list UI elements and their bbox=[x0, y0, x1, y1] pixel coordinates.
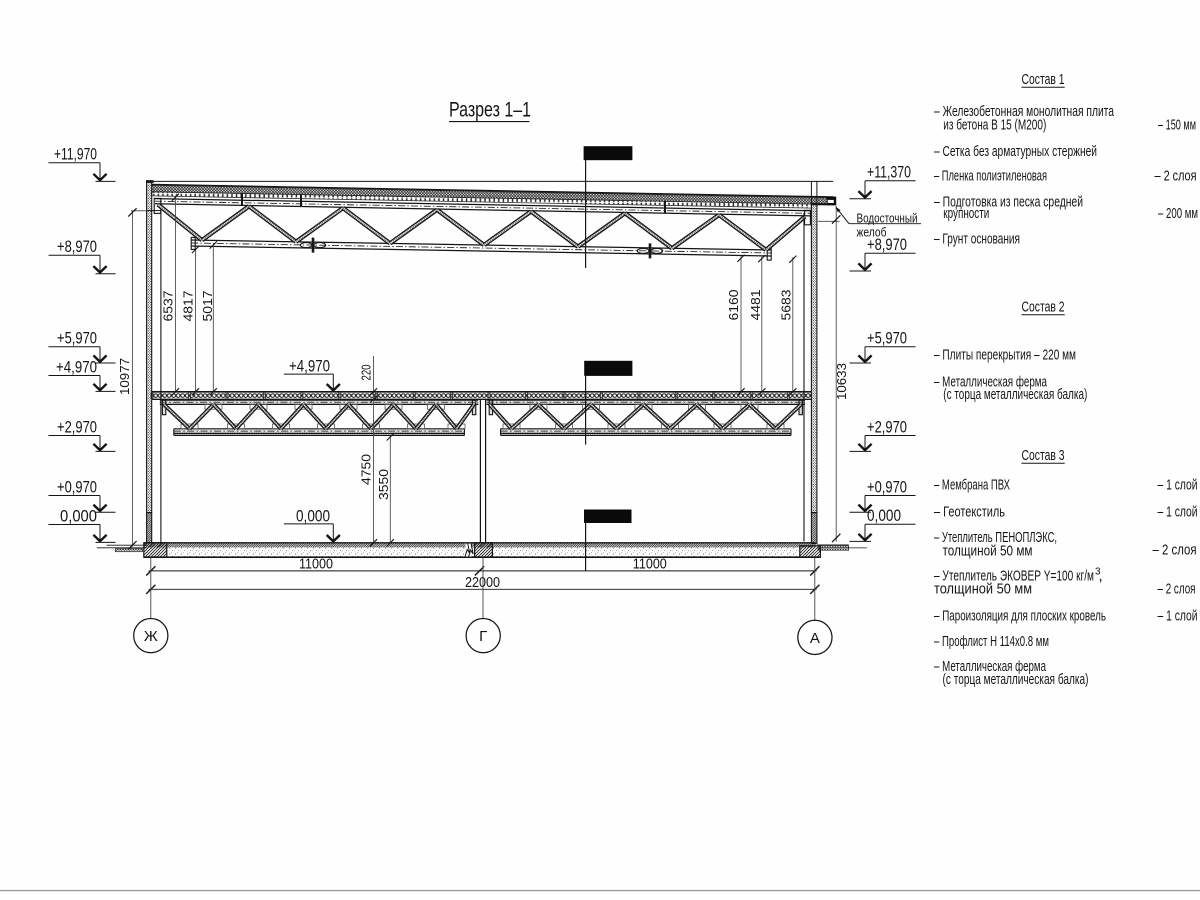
svg-text:– 2 слоя: – 2 слоя bbox=[1158, 580, 1196, 597]
svg-text:Состав 2: Состав 2 bbox=[1022, 300, 1065, 316]
svg-text:– Геотекстиль: – Геотекстиль bbox=[934, 503, 1005, 520]
svg-text:– 150 мм: – 150 мм bbox=[1158, 116, 1196, 133]
svg-text:+0,970: +0,970 bbox=[57, 478, 97, 496]
svg-text:+2,970: +2,970 bbox=[867, 418, 907, 436]
svg-text:– 1 слой: – 1 слой bbox=[1158, 607, 1198, 624]
svg-text:3550: 3550 bbox=[376, 469, 391, 500]
svg-text:6537: 6537 bbox=[161, 291, 176, 322]
svg-text:Состав 3: Состав 3 bbox=[1022, 448, 1065, 464]
svg-text:из бетона В 15 (М200): из бетона В 15 (М200) bbox=[943, 116, 1046, 133]
svg-text:,: , bbox=[1099, 568, 1103, 585]
svg-text:11000: 11000 bbox=[633, 557, 667, 573]
svg-text:крупности: крупности bbox=[943, 205, 989, 222]
svg-text:+4,970: +4,970 bbox=[56, 358, 97, 376]
svg-text:+11,970: +11,970 bbox=[54, 146, 97, 164]
svg-text:толщиной 50 мм: толщиной 50 мм bbox=[934, 580, 1032, 597]
svg-text:+0,970: +0,970 bbox=[867, 478, 907, 496]
svg-text:22000: 22000 bbox=[465, 575, 500, 591]
svg-text:А: А bbox=[810, 630, 820, 647]
svg-text:(с торца металлическая балка): (с торца металлическая балка) bbox=[943, 386, 1087, 403]
svg-text:Ж: Ж bbox=[144, 628, 158, 645]
svg-text:– Профлист Н 114х0.8 мм: – Профлист Н 114х0.8 мм bbox=[934, 633, 1049, 650]
svg-text:– Пленка полиэтиленовая: – Пленка полиэтиленовая bbox=[934, 168, 1047, 185]
svg-text:+5,970: +5,970 bbox=[57, 330, 97, 348]
svg-text:желоб: желоб bbox=[857, 226, 887, 240]
svg-text:(с торца металлическая балка): (с торца металлическая балка) bbox=[943, 671, 1089, 688]
svg-text:+5,970: +5,970 bbox=[867, 330, 907, 348]
svg-text:0,000: 0,000 bbox=[60, 507, 97, 525]
svg-text:5683: 5683 bbox=[779, 290, 794, 321]
svg-text:11000: 11000 bbox=[299, 557, 333, 573]
svg-text:Разрез 1–1: Разрез 1–1 bbox=[449, 98, 531, 121]
svg-text:+11,370: +11,370 bbox=[867, 164, 911, 182]
svg-text:– 1 слой: – 1 слой bbox=[1158, 477, 1198, 494]
svg-text:0,000: 0,000 bbox=[296, 507, 330, 525]
svg-text:5017: 5017 bbox=[200, 291, 215, 322]
svg-text:220: 220 bbox=[359, 365, 374, 381]
svg-text:– 200 мм: – 200 мм bbox=[1158, 205, 1198, 222]
svg-text:6160: 6160 bbox=[726, 290, 741, 321]
svg-text:– 2 слоя: – 2 слоя bbox=[1153, 542, 1197, 559]
svg-text:0,000: 0,000 bbox=[867, 507, 901, 525]
svg-text:+8,970: +8,970 bbox=[57, 238, 97, 256]
svg-text:– Сетка без арматурных стержне: – Сетка без арматурных стержней bbox=[934, 143, 1097, 160]
svg-text:4481: 4481 bbox=[748, 290, 763, 321]
svg-text:– Грунт основания: – Грунт основания bbox=[934, 231, 1020, 248]
svg-text:– Пароизоляция для плоских кро: – Пароизоляция для плоских кровель bbox=[934, 607, 1106, 624]
svg-text:4817: 4817 bbox=[181, 291, 196, 322]
svg-text:4750: 4750 bbox=[359, 454, 374, 485]
svg-text:+2,970: +2,970 bbox=[57, 418, 97, 436]
svg-text:Состав 1: Состав 1 bbox=[1022, 72, 1065, 88]
svg-text:+4,970: +4,970 bbox=[289, 358, 330, 376]
svg-text:– Плиты перекрытия – 220 мм: – Плиты перекрытия – 220 мм bbox=[934, 347, 1076, 364]
svg-text:– 1 слой: – 1 слой bbox=[1158, 503, 1198, 520]
svg-text:– 2 слоя: – 2 слоя bbox=[1155, 168, 1197, 185]
svg-text:толщиной 50 мм: толщиной 50 мм bbox=[943, 543, 1033, 560]
svg-text:10977: 10977 bbox=[117, 358, 132, 395]
svg-text:Г: Г bbox=[479, 628, 487, 645]
svg-text:– Мембрана ПВХ: – Мембрана ПВХ bbox=[934, 477, 1010, 494]
svg-text:10633: 10633 bbox=[834, 363, 849, 400]
